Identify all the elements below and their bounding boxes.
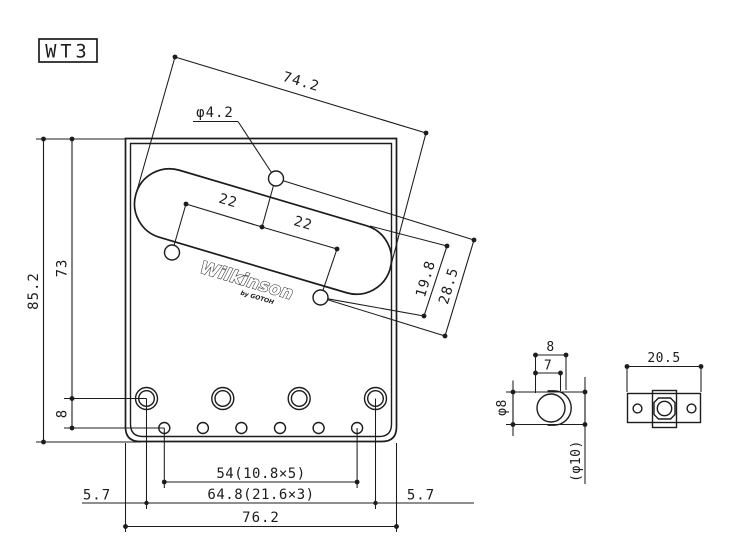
- leader-phi42: [238, 122, 272, 173]
- ext-22-right: [323, 249, 337, 290]
- ext-22-mid: [262, 186, 274, 228]
- saddle-hole-3-inner: [291, 391, 307, 407]
- ext-198-bottom: [328, 299, 424, 316]
- dot-648-right: [373, 501, 377, 505]
- dim-margin-right: 5.7: [407, 488, 435, 504]
- saddle-side-hole-left: [633, 404, 642, 413]
- dim-center-hole-diameter: φ4.2: [196, 105, 234, 121]
- dim-saddle-overall-width: 8: [546, 340, 554, 355]
- dim-saddle-row-height: 73: [55, 259, 71, 278]
- dot-648-left: [144, 501, 148, 505]
- brand-logo: Wilkinson by GOTOH: [196, 258, 296, 311]
- saddle-side-hole-right: [687, 404, 696, 413]
- saddle-hole-2-inner: [215, 391, 231, 407]
- ext-74-right: [390, 133, 426, 269]
- string-hole-3: [236, 423, 247, 434]
- dim-plate-width: 76.2: [242, 510, 280, 526]
- string-hole-4: [275, 423, 286, 434]
- saddle-screw-holes: [136, 388, 387, 410]
- dim-offset-outer: 28.5: [436, 266, 462, 307]
- model-label-text: WT3: [45, 42, 90, 63]
- center-pivot-hole: [269, 171, 284, 186]
- dim-saddle-overall-length: 20.5: [647, 351, 680, 366]
- pickup-screw-hole-1: [165, 245, 180, 260]
- saddle-center-hole: [657, 401, 671, 415]
- saddle-section-view: 8 7 φ8 (φ10): [495, 340, 585, 484]
- dim-offset-inner: 19.8: [413, 259, 439, 300]
- dim-spacing-left: 22: [217, 191, 240, 212]
- dim-string-row-offset: 8: [55, 409, 71, 418]
- ext-22-left: [174, 204, 186, 246]
- string-hole-2: [197, 423, 208, 434]
- string-hole-5: [313, 423, 324, 434]
- dim-saddle-inner-width: 7: [544, 359, 552, 374]
- dim-string-hole-span: 54(10.8×5): [216, 466, 305, 482]
- string-holes: [159, 423, 363, 434]
- dim-saddle-screw-span: 64.8(21.6×3): [207, 487, 314, 503]
- technical-drawing: WT3 Wilkinson by GOTOH 74.2 φ4.2: [0, 0, 730, 548]
- dim-margin-left: 5.7: [83, 488, 111, 504]
- drawing-sheet: WT3 Wilkinson by GOTOH 74.2 φ4.2: [0, 0, 730, 548]
- dim-plate-height: 85.2: [26, 272, 42, 310]
- ext-74-left: [136, 57, 175, 194]
- pickup-screw-hole-2: [313, 290, 328, 305]
- ext-198-top: [370, 226, 447, 246]
- dim-spacing-right: 22: [292, 213, 315, 234]
- saddle-top-view: 20.5: [627, 351, 701, 428]
- dim-barrel-diameter: φ8: [495, 399, 510, 416]
- dim-reference-diameter: (φ10): [569, 440, 584, 482]
- saddle-barrel-circle: [537, 394, 565, 422]
